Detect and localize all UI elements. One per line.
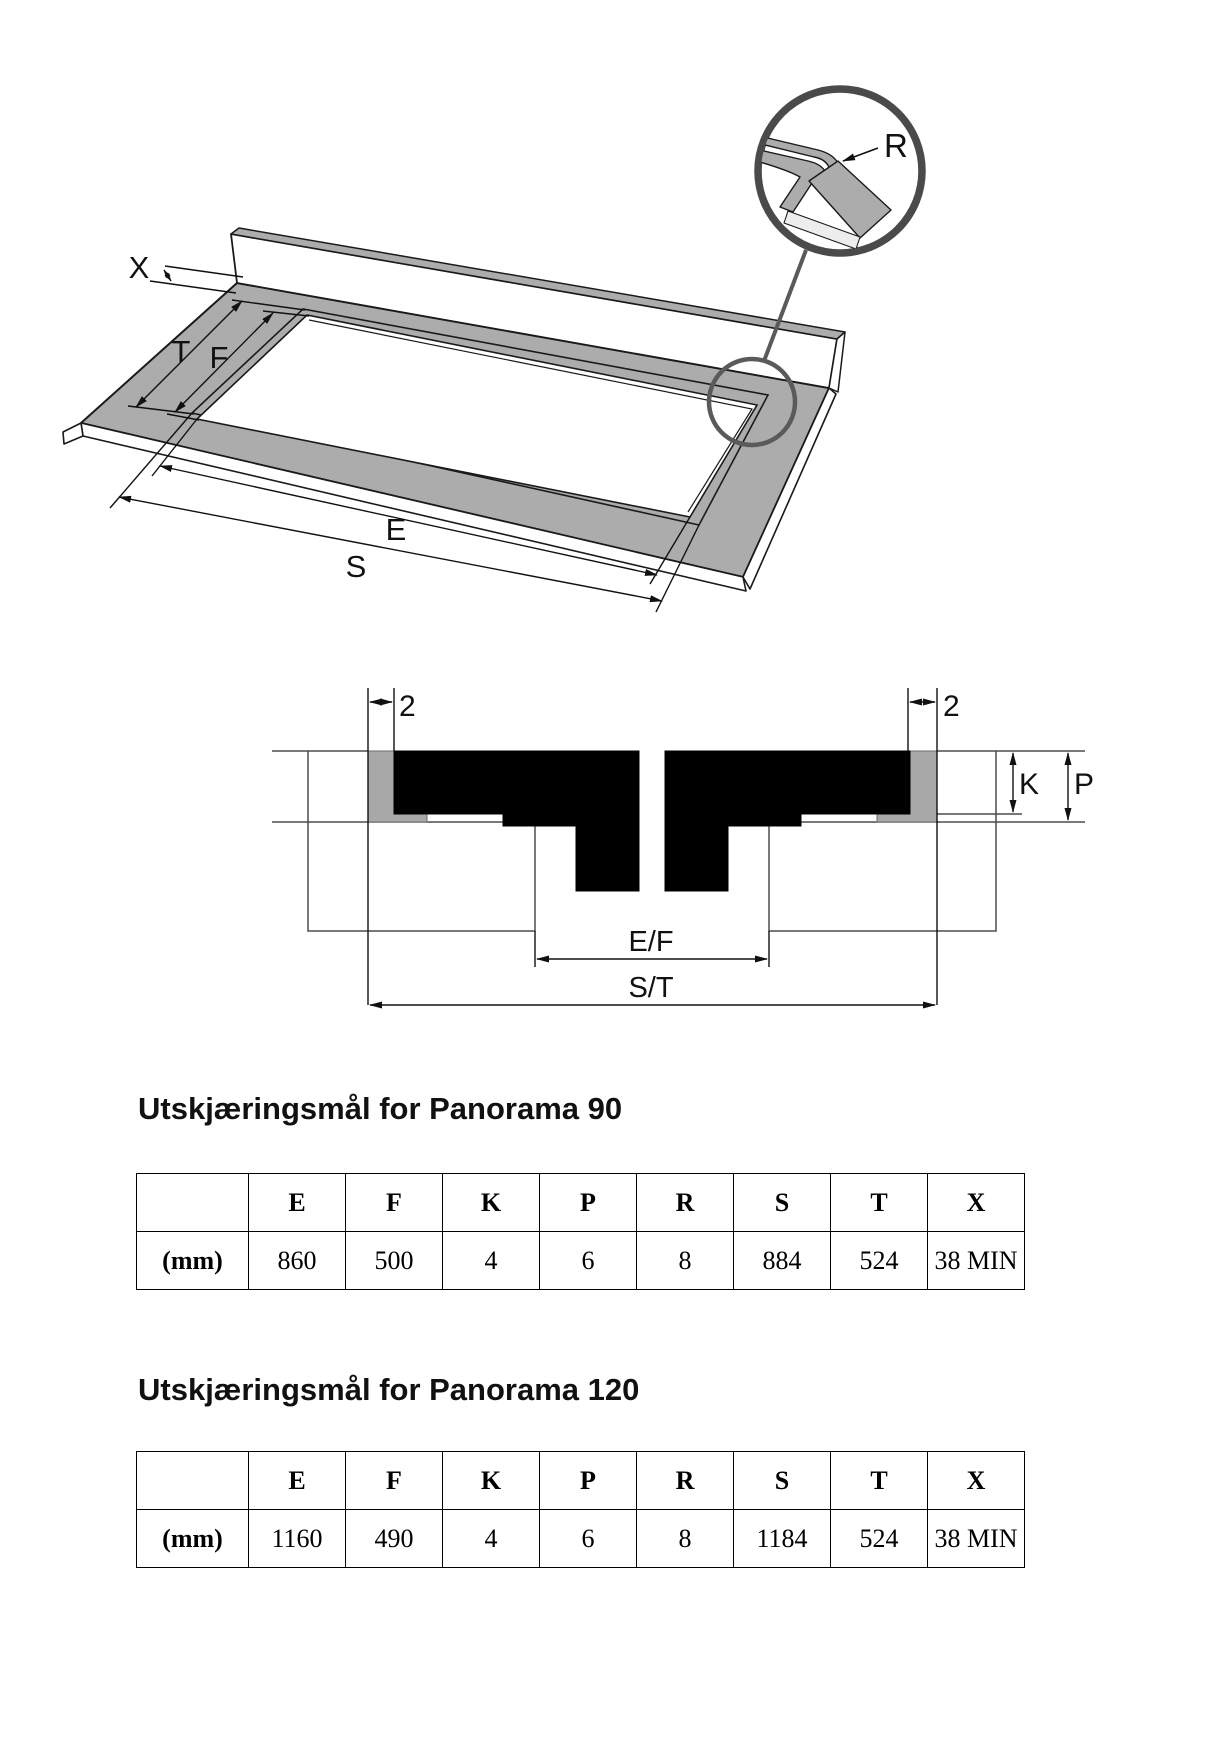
col-header: S [734, 1174, 831, 1232]
label-ef: E/F [628, 926, 673, 958]
col-header: K [443, 1174, 540, 1232]
label-t: T [172, 334, 191, 369]
col-header: R [637, 1452, 734, 1510]
col-header: P [540, 1174, 637, 1232]
value-cell: 490 [346, 1510, 443, 1568]
col-header: T [831, 1452, 928, 1510]
value-cell: 884 [734, 1232, 831, 1290]
col-header: X [928, 1452, 1025, 1510]
value-cell: 524 [831, 1232, 928, 1290]
dimension-gap-left [368, 688, 394, 1005]
label-r: R [884, 127, 908, 164]
col-header: T [831, 1174, 928, 1232]
unit-cell: (mm) [137, 1510, 249, 1568]
label-p: P [1074, 768, 1094, 801]
radius-detail-circle [753, 89, 922, 253]
countertop-3d-figure: X T F E S [0, 80, 1212, 620]
section-title-panorama-90: Utskjæringsmål for Panorama 90 [138, 1091, 622, 1127]
value-cell: 8 [637, 1510, 734, 1568]
table-corner-cell [137, 1174, 249, 1232]
value-cell: 4 [443, 1510, 540, 1568]
value-cell: 6 [540, 1510, 637, 1568]
col-header: F [346, 1452, 443, 1510]
table-value-row: (mm) 860 500 4 6 8 884 524 38 MIN [137, 1232, 1025, 1290]
section-title-panorama-120: Utskjæringsmål for Panorama 120 [138, 1372, 639, 1408]
col-header: F [346, 1174, 443, 1232]
value-cell: 524 [831, 1510, 928, 1568]
hob-section [394, 751, 910, 891]
manual-page: X T F E S [0, 0, 1212, 1746]
value-cell: 6 [540, 1232, 637, 1290]
label-e: E [386, 512, 407, 547]
col-header: P [540, 1452, 637, 1510]
value-cell: 500 [346, 1232, 443, 1290]
col-header: S [734, 1452, 831, 1510]
table-value-row: (mm) 1160 490 4 6 8 1184 524 38 MIN [137, 1510, 1025, 1568]
dimension-gap-right [908, 688, 937, 1005]
value-cell: 4 [443, 1232, 540, 1290]
cross-section-figure: 2 2 K P E/F S/T [0, 620, 1212, 1030]
value-cell: 1184 [734, 1510, 831, 1568]
value-cell: 1160 [249, 1510, 346, 1568]
col-header: E [249, 1174, 346, 1232]
label-gap-right: 2 [943, 690, 960, 723]
table-panorama-90: E F K P R S T X (mm) 860 500 4 6 8 884 5… [136, 1173, 1025, 1290]
value-cell: 38 MIN [928, 1510, 1025, 1568]
unit-cell: (mm) [137, 1232, 249, 1290]
value-cell: 860 [249, 1232, 346, 1290]
label-f: F [210, 340, 229, 375]
table-header-row: E F K P R S T X [137, 1174, 1025, 1232]
table-header-row: E F K P R S T X [137, 1452, 1025, 1510]
col-header: E [249, 1452, 346, 1510]
label-st: S/T [628, 972, 673, 1004]
col-header: R [637, 1174, 734, 1232]
col-header: K [443, 1452, 540, 1510]
table-corner-cell [137, 1452, 249, 1510]
label-k: K [1019, 768, 1039, 801]
value-cell: 38 MIN [928, 1232, 1025, 1290]
value-cell: 8 [637, 1232, 734, 1290]
table-panorama-120: E F K P R S T X (mm) 1160 490 4 6 8 1184… [136, 1451, 1025, 1568]
label-s: S [346, 549, 367, 584]
col-header: X [928, 1174, 1025, 1232]
label-gap-left: 2 [399, 690, 416, 723]
label-x: X [129, 250, 150, 285]
